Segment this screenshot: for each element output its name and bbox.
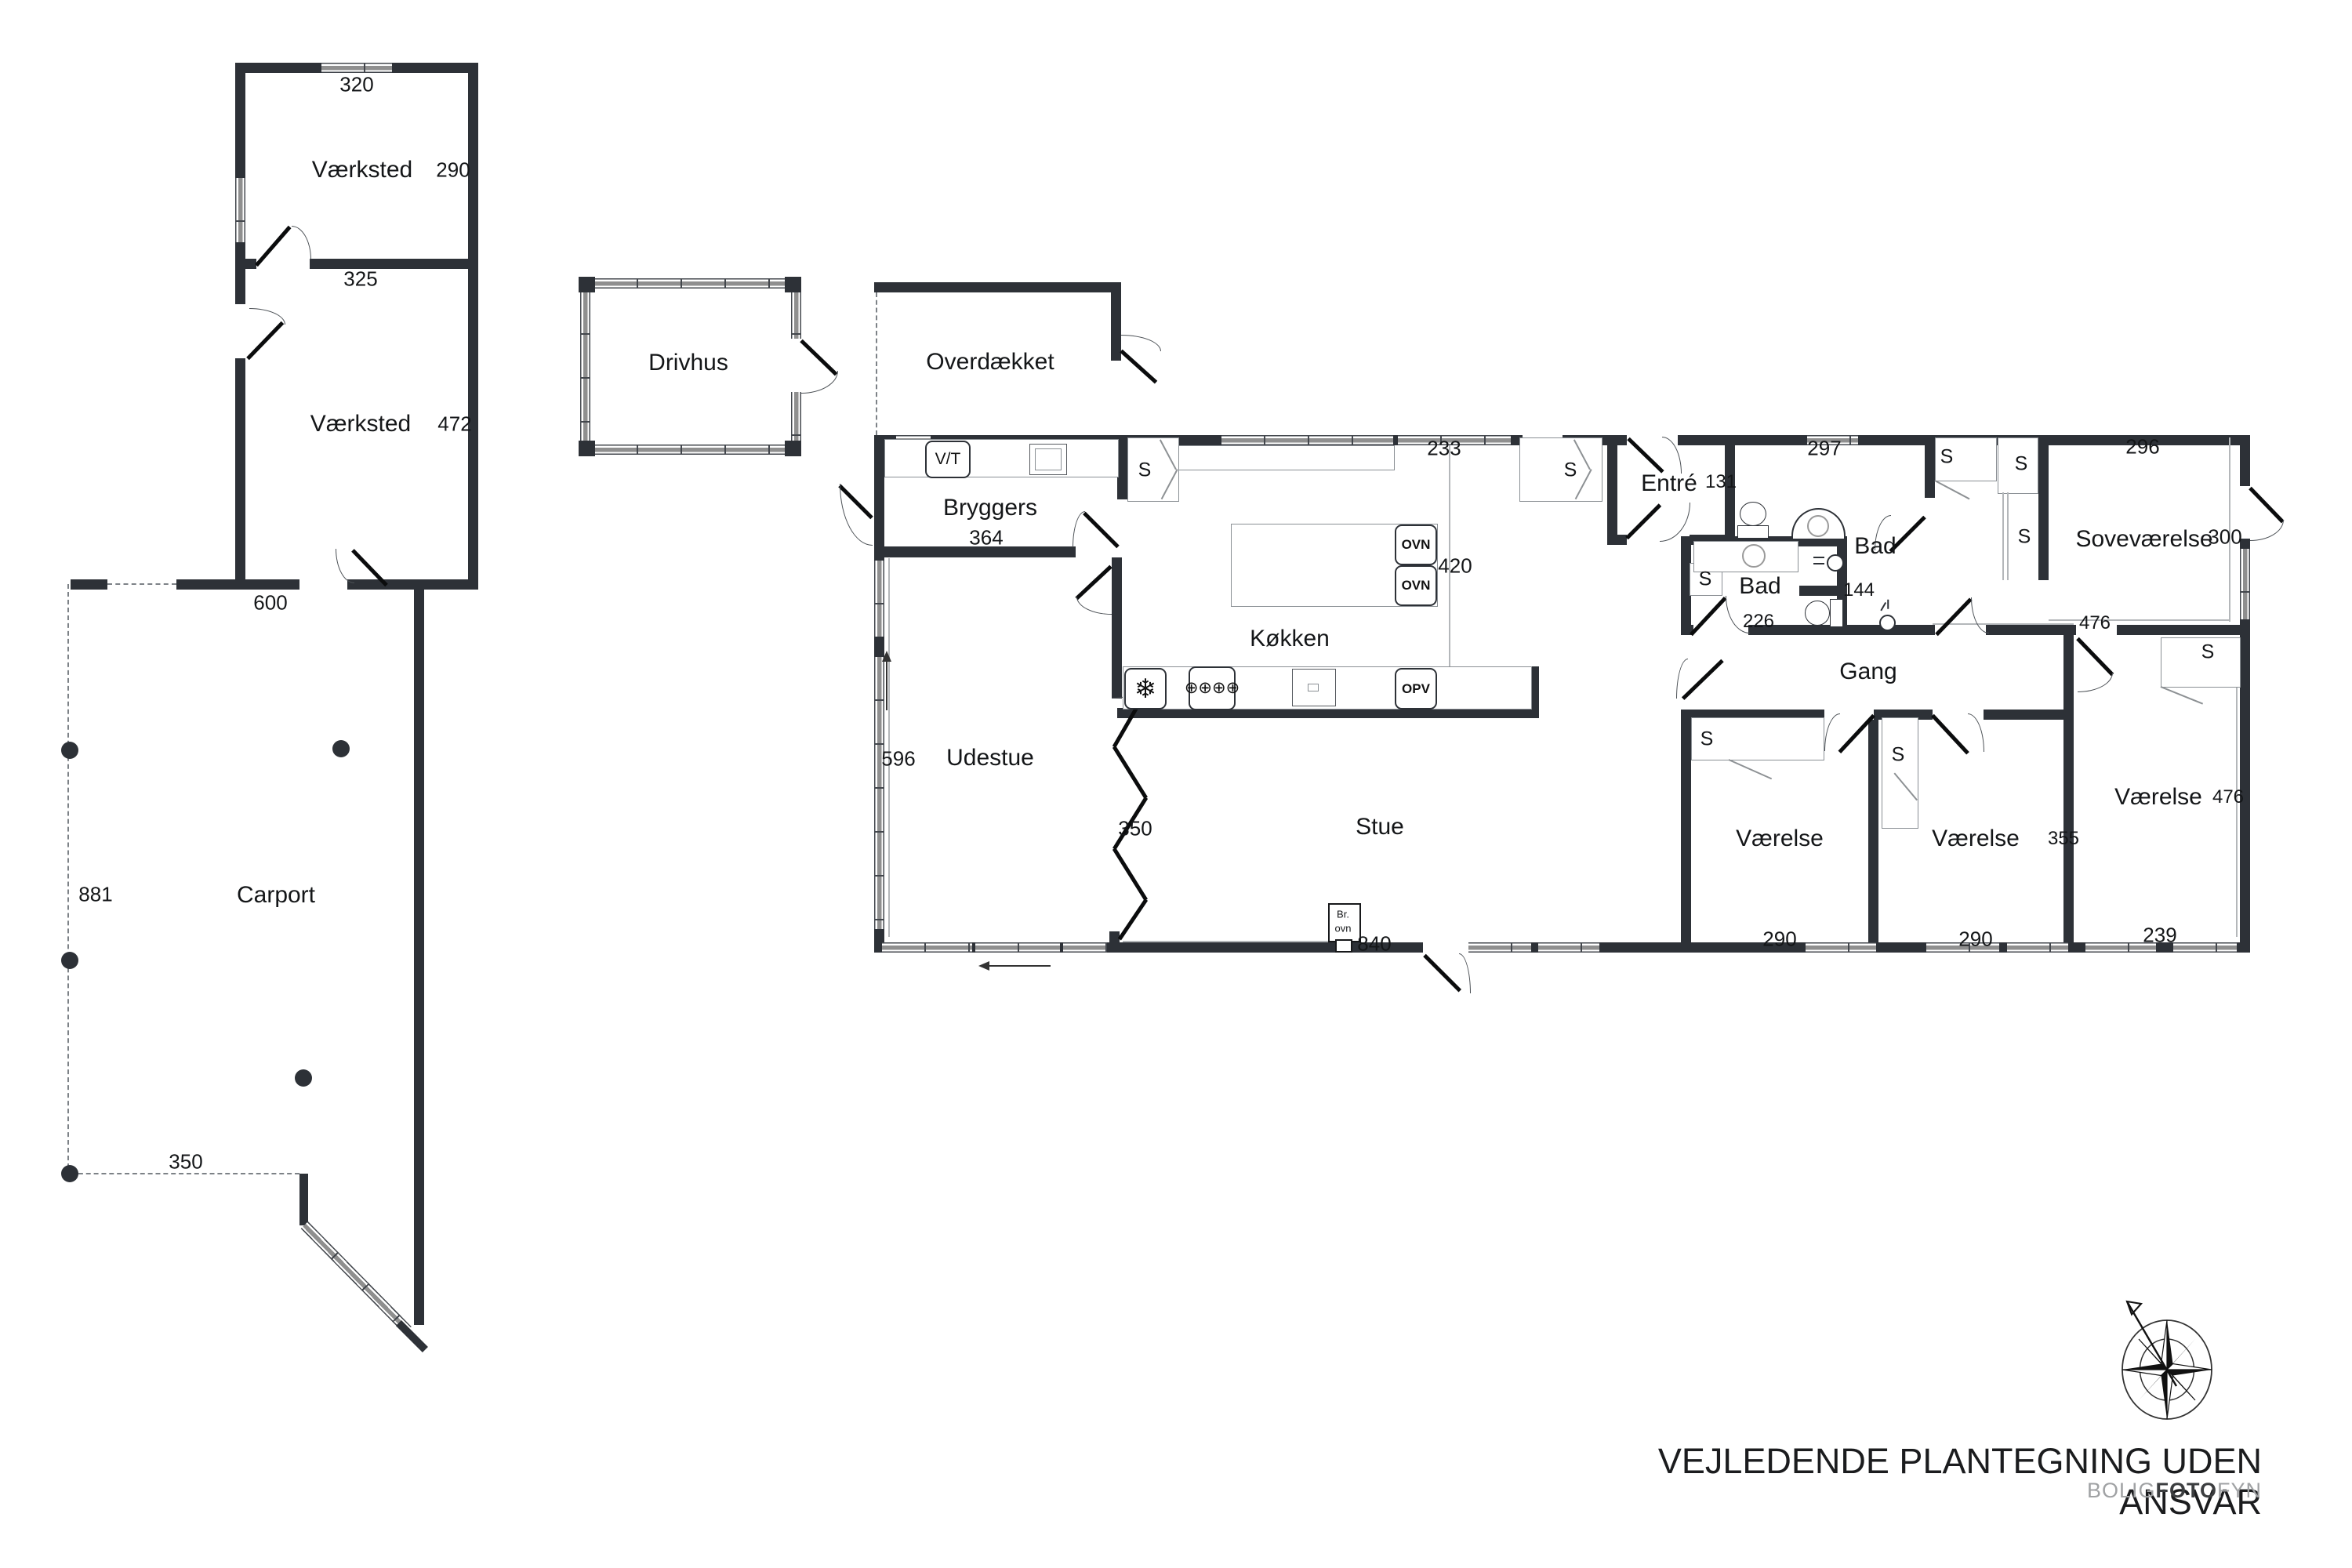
dimension-label: 472 [437,412,471,437]
wood-stove-label: ovn [1335,923,1352,935]
door-leaf [246,321,284,361]
wood-stove-label: Br. [1337,909,1349,920]
door-arc [1121,335,1161,351]
window [1221,435,1393,445]
window [1468,942,1531,953]
toilet-bowl [1805,601,1830,626]
closet-label: S [1564,459,1577,482]
corner-post [579,441,595,456]
wall [1925,435,1935,498]
toilet-bowl [1740,502,1766,526]
brand-fyn: FYN [2217,1479,2262,1502]
wall [71,579,107,590]
closet-label: S [1138,459,1152,482]
wall [874,282,1121,292]
sink-basin [1035,448,1062,470]
carport-boundary-dashed [67,584,69,1176]
shower-spray [1813,557,1824,558]
wall [1109,931,1120,953]
wall [310,259,468,269]
dimension-label: 290 [1762,927,1796,952]
dimension-label: 420 [1438,554,1472,579]
door-arc [1824,713,1840,751]
door-leaf [2076,637,2114,677]
carport-post [61,952,78,969]
dimension-label: 290 [1958,927,1992,952]
entry-arrow [886,660,887,710]
oven-label: OVN [1402,578,1431,593]
closet-label: S [1700,728,1714,751]
door-leaf [1120,350,1157,384]
boundary-dashed [107,583,176,585]
room-label-vaerelse3: Værelse [2114,784,2202,811]
corner-post [579,277,595,292]
door-arc [840,484,873,546]
stove-label-line1: Br. [1337,909,1349,920]
room-outline [2049,619,2229,621]
door-arc [336,549,354,583]
washer-dryer: V/T [925,441,971,478]
window [874,657,884,929]
dimension-label: 131 [1705,471,1737,493]
dimension-label: 840 [1357,932,1391,956]
closet-label: S [1892,744,1905,767]
dishwasher: OPV [1395,668,1437,710]
corner-post [785,441,801,456]
door-leaf [1931,714,1969,755]
folding-wall-segment [1118,898,1148,940]
shower-spray [1813,563,1824,564]
door-leaf [1690,597,1726,636]
door-leaf [1083,512,1120,549]
door-leaf [1625,503,1661,539]
closet [1127,437,1179,502]
wall [414,584,424,1325]
room-label-vaerelse2: Værelse [1932,826,2020,852]
window [2173,942,2237,953]
room-label-koekken: Køkken [1250,626,1330,652]
shower-spray [1880,602,1886,611]
wall [1868,720,1878,942]
closet-front [2161,686,2203,704]
door-arc [1459,953,1471,993]
wall [1112,557,1122,699]
room-label-vaerksted1: Værksted [312,157,412,183]
compass-icon [2101,1292,2219,1421]
closet-label: S [2015,453,2028,476]
oven: OVN [1395,524,1437,565]
entry-arrow-head [882,651,891,662]
closet-depth-line [2002,492,2004,580]
door-opening [235,304,245,358]
washbasin-bowl [1807,515,1829,537]
door-arc [2078,673,2113,692]
room-label-bad-large: Bad [1854,533,1896,560]
glass-wall [791,392,801,446]
dimension-label: 144 [1843,579,1875,601]
door-arc [1073,511,1085,547]
room-label-vaerksted2: Værksted [310,411,411,437]
room-label-vaerelse1: Værelse [1736,826,1824,852]
closet-label: S [2201,641,2215,664]
dimension-label: 350 [169,1150,202,1174]
dimension-label: 325 [343,267,377,292]
room-label-sovevaerelse: Soveværelse [2075,526,2212,553]
window [882,942,972,953]
sink-basin [1308,684,1319,691]
wall [2063,635,2074,942]
glass-wall [791,291,801,339]
dimension-label: 296 [2125,435,2159,459]
stove-label-line2: ovn [1335,923,1352,935]
counter [884,439,1119,477]
folding-wall-segment [1112,746,1148,799]
room-label-bryggers: Bryggers [943,495,1037,521]
door-arc [1676,659,1688,699]
folding-wall-segment [1112,848,1148,901]
brand-foto: FOTO [2155,1479,2217,1502]
sliding-arrow [989,965,1051,967]
sliding-arrow-head [978,961,989,971]
oven: OVN [1395,565,1437,606]
door-leaf [2249,487,2284,524]
closet-label: S [1940,446,1954,469]
washer-dryer-label: V/T [935,450,961,469]
brand-logo: BOLIGFOTOFYN [1944,1479,2262,1503]
dimension-label: 320 [339,73,373,97]
carport-post [295,1069,312,1087]
washbasin-bowl [1742,544,1766,568]
dimension-label: 364 [969,526,1003,550]
room-label-entre: Entré [1641,470,1697,497]
glass-wall [594,278,787,289]
oven-label: OVN [1402,537,1431,553]
carport-post [61,1165,78,1182]
dimension-line [1123,941,1358,942]
brand-bolig: BOLIG [2087,1479,2156,1502]
fridge-icon: ❄ [1124,668,1167,710]
door-arc [801,371,838,394]
closet-front [1729,759,1772,779]
hob-icon: ⊕⊕⊕⊕ [1189,666,1236,710]
door-leaf [255,226,291,267]
window [2240,549,2250,619]
closet-front [1935,480,1970,499]
toilet-tank [1830,599,1843,627]
wall [1986,625,2076,635]
closet [1882,717,1918,829]
wall [1111,282,1121,361]
window [874,561,884,637]
dimension-label: 355 [2048,828,2079,850]
room-label-gang: Gang [1839,659,1896,685]
glass-wall [594,445,787,455]
wall [176,579,299,590]
window [321,63,392,73]
room-label-stue: Stue [1356,814,1404,840]
closet-label: S [1699,568,1712,591]
room-label-udestue: Udestue [946,745,1034,771]
dimension-label: 290 [436,158,470,183]
dimension-label: 600 [253,591,287,615]
stove-flue [1335,939,1352,953]
dimension-label: 881 [78,883,112,907]
door-arc [249,308,285,325]
wall-stub [299,1174,308,1225]
wall [1607,535,1627,545]
window-wall-diagonal [301,1221,412,1334]
boundary-dashed [876,292,877,435]
dimension-label: 297 [1807,437,1841,461]
closet-label: S [2018,526,2031,549]
dimension-label: 239 [2143,924,2176,948]
door-opening [1423,942,1468,953]
room-label-drivhus: Drivhus [648,350,728,376]
wall [468,63,478,590]
door-leaf [1423,954,1461,993]
room-label-carport: Carport [237,882,315,909]
window [2007,942,2068,953]
wall [1607,435,1617,545]
dimension-label: 596 [881,747,915,771]
toilet-tank [1737,525,1769,539]
wall [2038,435,2049,580]
dimension-label: 300 [2208,525,2241,550]
room-label-overdaekket: Overdækket [926,349,1054,376]
wall [1984,710,2074,720]
wall [1799,586,1844,596]
door-arc [292,226,311,260]
door-leaf [1075,565,1112,601]
dimension-label: 476 [2079,612,2111,634]
wall-cap [396,1320,428,1352]
window [235,178,245,242]
room-label-bad-small: Bad [1739,573,1780,600]
wall [347,579,478,590]
door-arc [1076,597,1112,615]
door-leaf [1935,597,1972,636]
shower-head-icon [1827,554,1844,572]
glass-wall [580,291,590,446]
shower-head-icon [1879,615,1896,631]
door-arc [1971,597,1989,633]
window [1063,942,1107,953]
dimension-line [1933,623,2074,625]
dimension-label: 476 [2212,786,2244,808]
dimension-label: 350 [1118,817,1152,841]
door-arc [1968,713,1984,752]
window [1538,942,1599,953]
closet-depth-line [2007,492,2009,580]
door-arc [2250,520,2284,541]
corner-post [785,277,801,292]
sliding-door [975,942,1060,953]
wall [1681,710,1691,942]
dimension-label: 226 [1743,611,1774,633]
dimension-label: 233 [1427,437,1461,461]
carport-post [332,740,350,757]
shower-spray [1887,600,1889,609]
dishwasher-label: OPV [1402,681,1430,697]
wall [2117,625,2250,635]
floor-plan: 320 Værksted 290 325 Værksted 472 600 88… [0,0,2352,1568]
window [1806,942,1876,953]
carport-post [61,742,78,759]
